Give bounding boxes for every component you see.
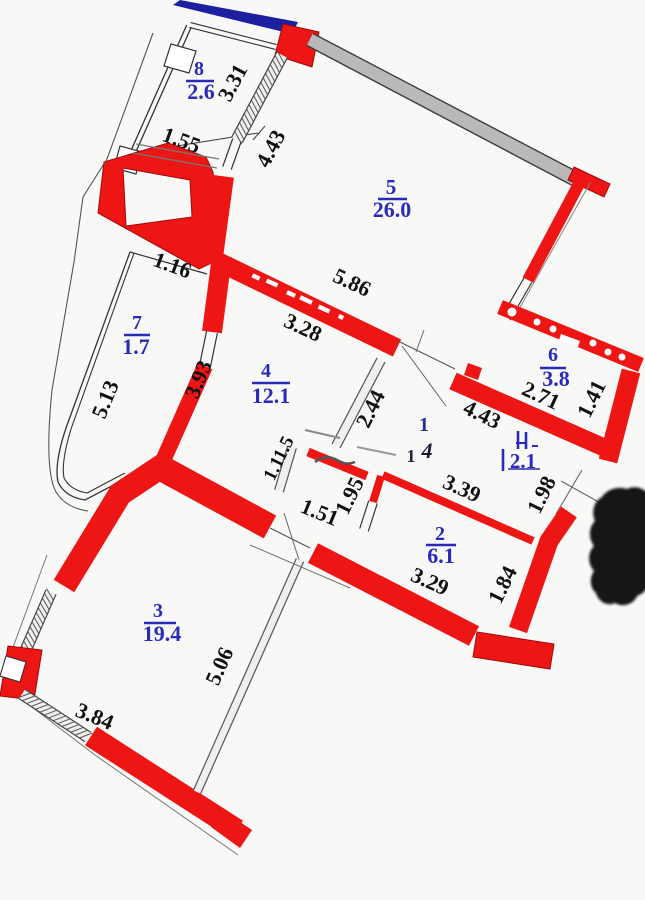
svg-text:2: 2 xyxy=(435,523,445,545)
svg-text:6: 6 xyxy=(548,344,558,366)
svg-text:19.4: 19.4 xyxy=(143,621,182,646)
svg-text:1: 1 xyxy=(407,446,416,466)
svg-text:4: 4 xyxy=(261,360,271,382)
svg-text:6.1: 6.1 xyxy=(427,543,455,568)
svg-text:8: 8 xyxy=(194,58,204,80)
svg-text:4: 4 xyxy=(421,438,433,463)
svg-text:3: 3 xyxy=(153,600,163,622)
svg-text:12.1: 12.1 xyxy=(252,383,291,408)
svg-text:26.0: 26.0 xyxy=(373,197,412,222)
svg-text:5: 5 xyxy=(386,175,397,199)
svg-text:7: 7 xyxy=(132,312,142,334)
svg-text:2.6: 2.6 xyxy=(187,79,215,104)
svg-text:1: 1 xyxy=(419,414,429,436)
svg-text:1.7: 1.7 xyxy=(122,334,150,359)
